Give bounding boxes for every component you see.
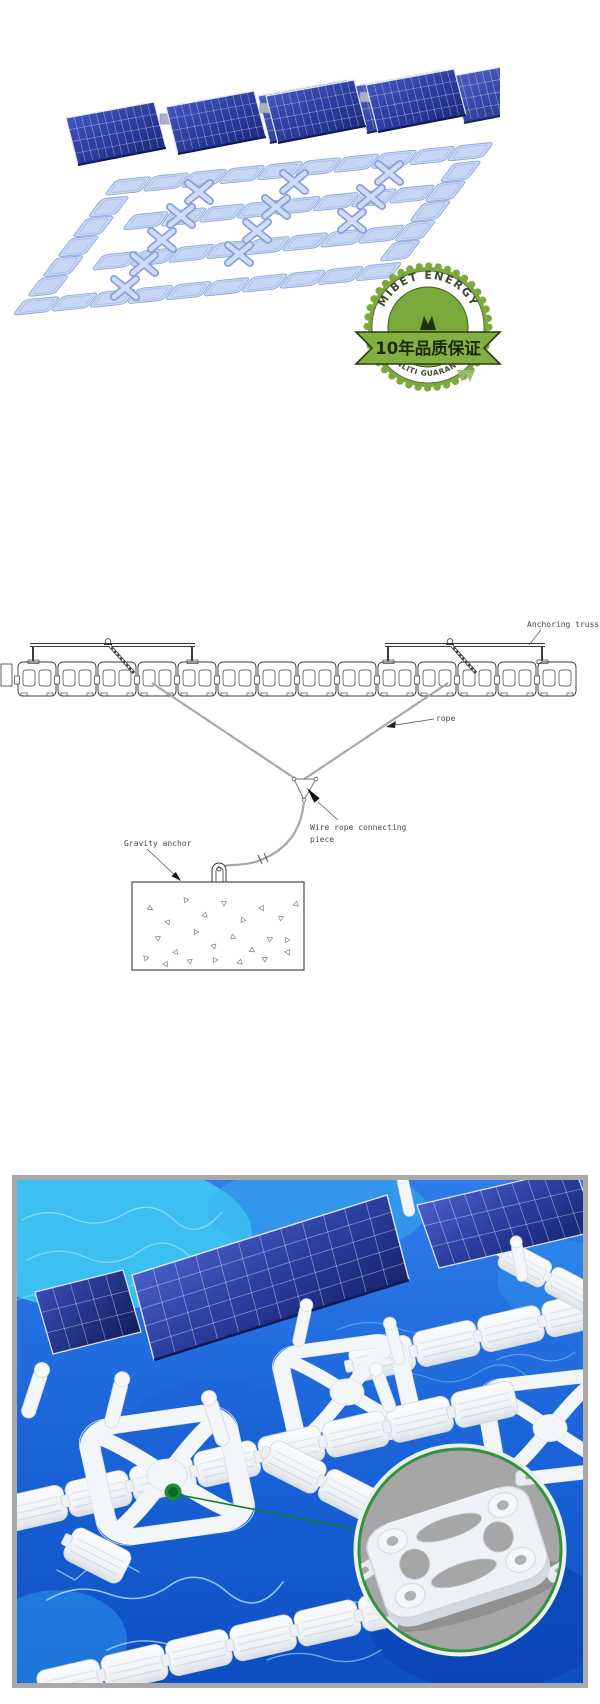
rope-right	[304, 683, 449, 780]
quality-badge-seal: MIBET ENERGY QUANLITI GUARANTEED 10年品质保证	[352, 258, 502, 394]
label-wire-rope-2: piece	[310, 835, 334, 844]
float-row-section	[1, 662, 576, 696]
diagram-labels: Anchoring truss rope Wire rope connectin…	[124, 620, 599, 881]
installation-photo	[12, 1175, 588, 1688]
label-anchoring-truss: Anchoring truss	[527, 620, 599, 629]
rope-left	[152, 683, 297, 780]
label-gravity-anchor: Gravity anchor	[124, 839, 192, 848]
label-wire-rope-1: Wire rope connecting	[310, 823, 407, 832]
badge-ribbon-text: 10年品质保证	[375, 338, 481, 358]
connecting-piece-arrowhead	[307, 788, 320, 803]
page: MIBET ENERGY QUANLITI GUARANTEED 10年品质保证	[0, 0, 600, 1704]
anchor-rope	[224, 801, 304, 866]
gravity-anchor-block	[132, 863, 304, 970]
photo-scene	[17, 1180, 583, 1683]
anchoring-diagram: Anchoring truss rope Wire rope connectin…	[0, 560, 600, 980]
label-rope: rope	[436, 714, 455, 723]
marker-dot	[165, 1484, 182, 1501]
